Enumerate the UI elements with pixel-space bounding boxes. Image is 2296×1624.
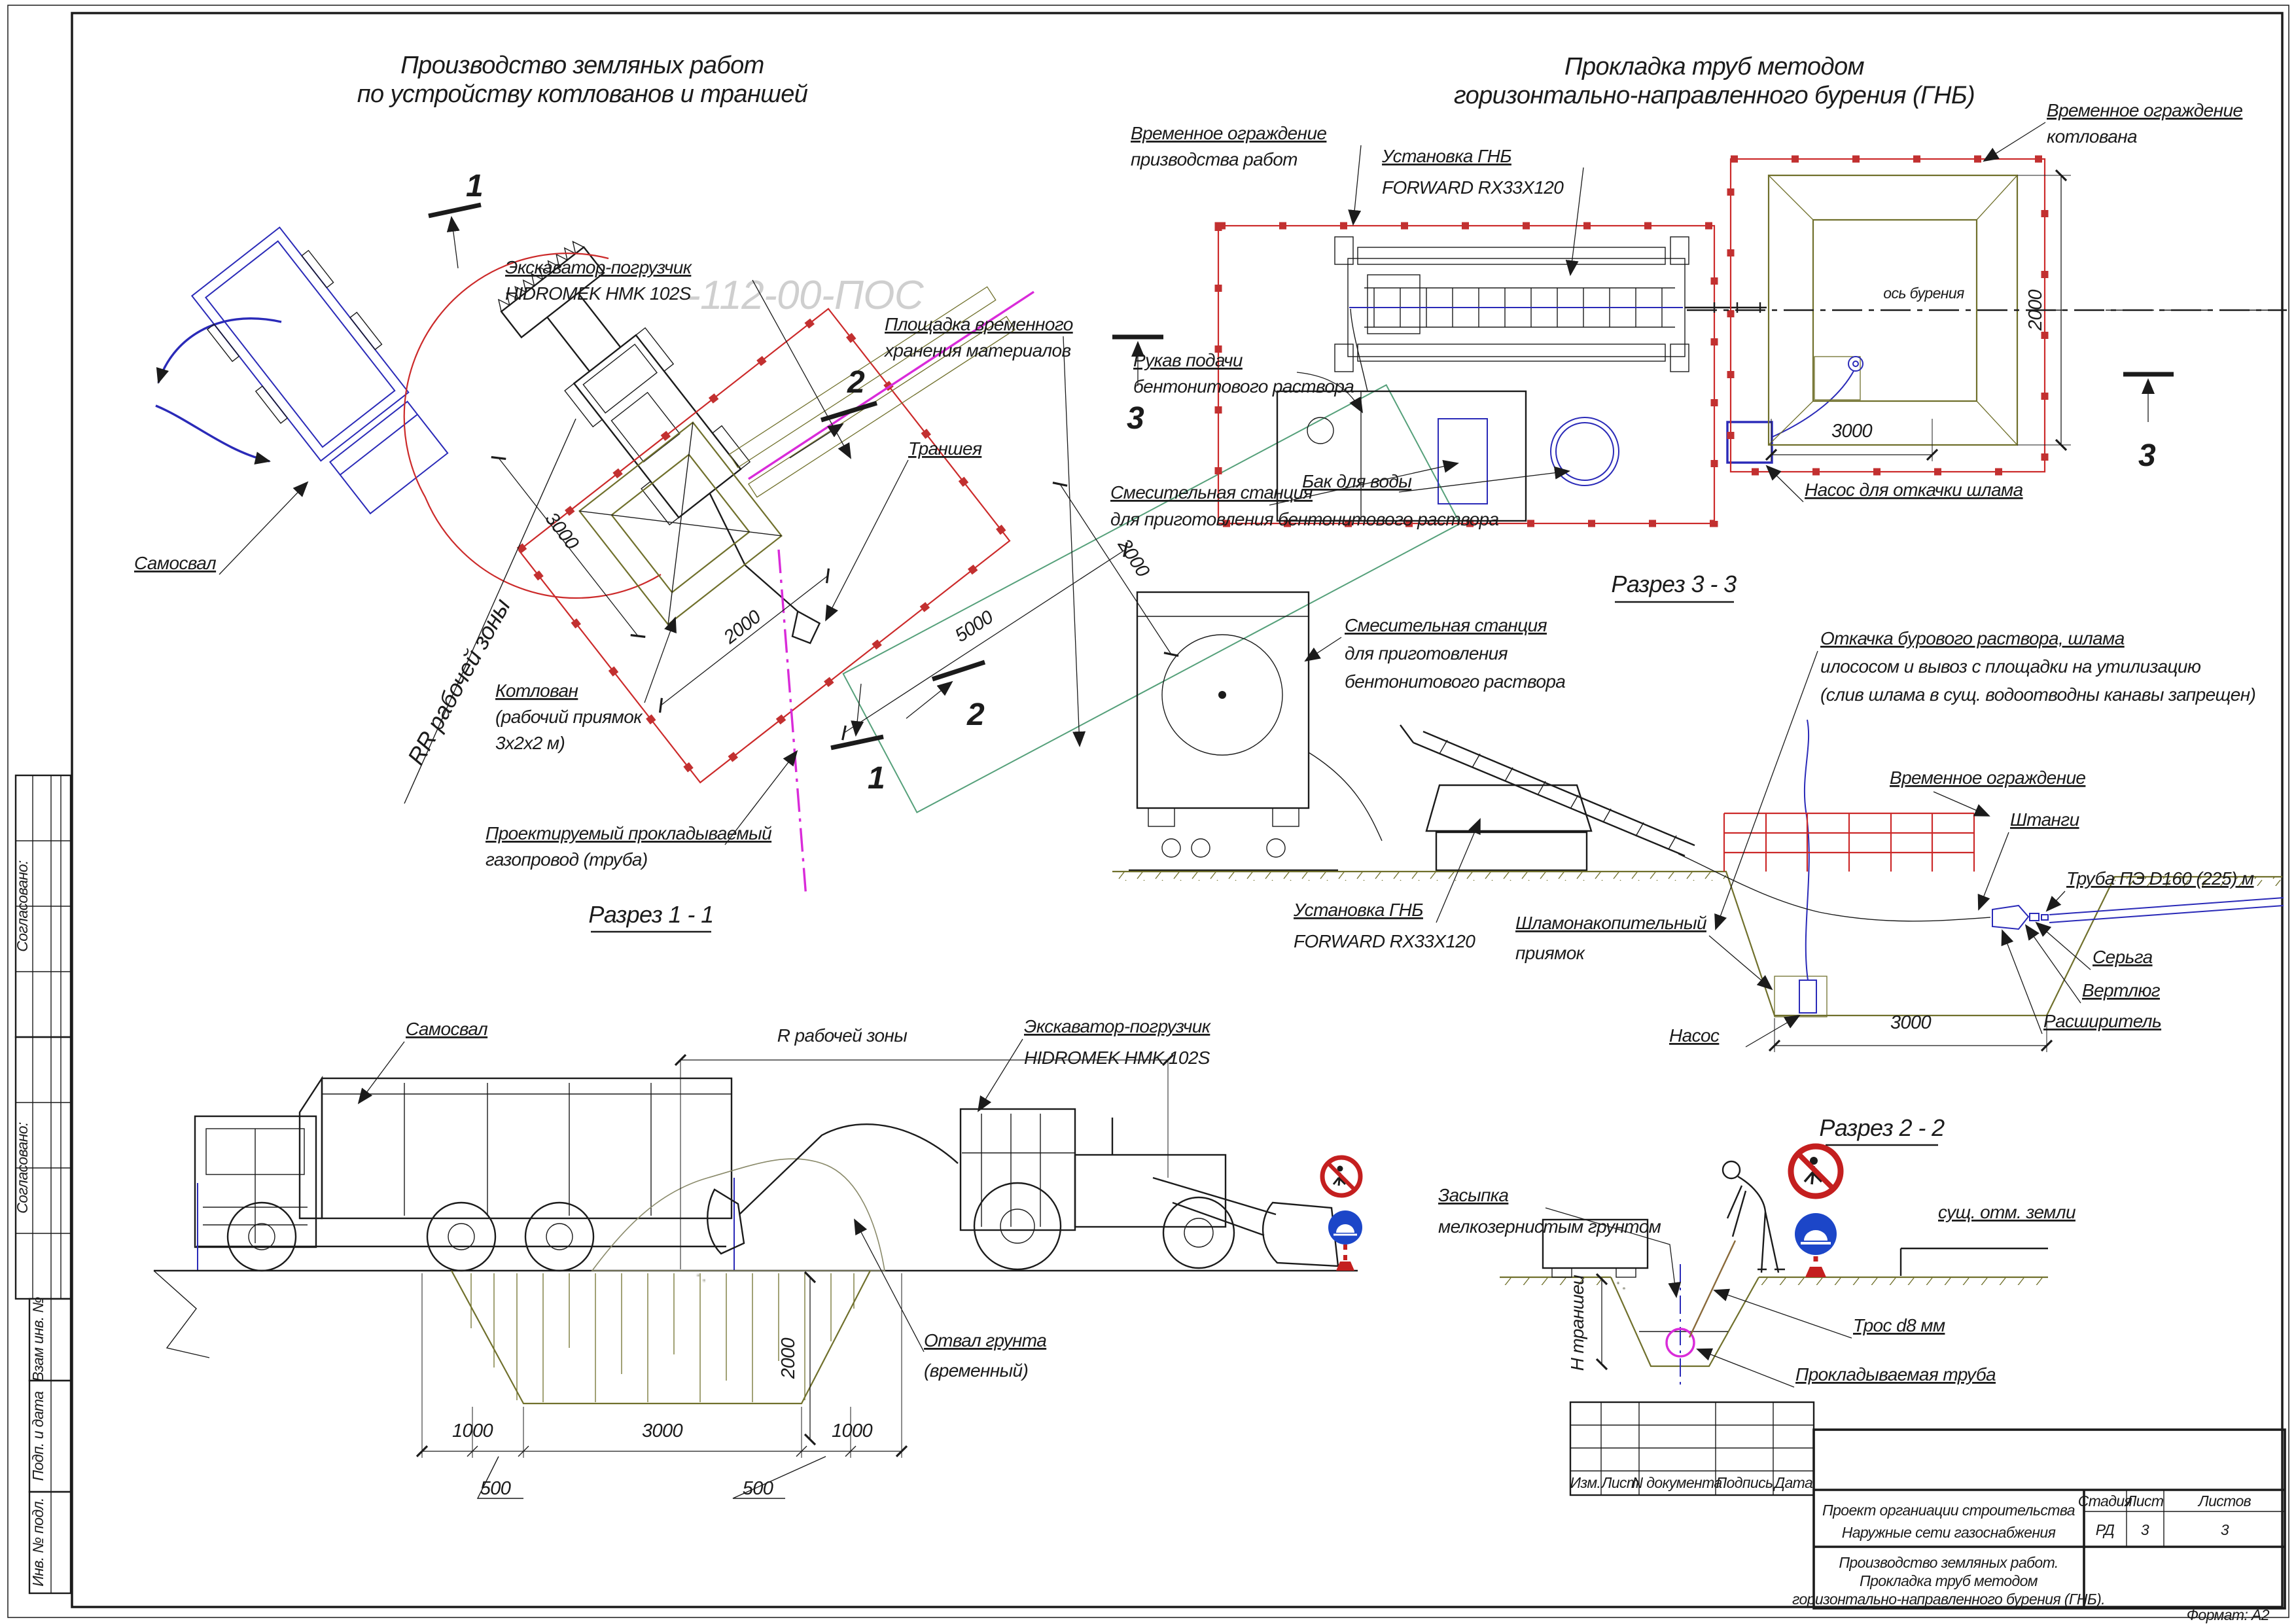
stage-value: РД — [2096, 1521, 2115, 1538]
svg-text:1: 1 — [466, 169, 483, 203]
sheets-value: 3 — [2221, 1521, 2229, 1538]
label-rig-plan-1: Установка ГНБ — [1381, 146, 1511, 166]
label-fence-pit-1: Временное ограждение — [2047, 100, 2242, 120]
label-excavator-2: HIDROMEK HMK 102S — [505, 283, 692, 304]
label-spoil-1: Отвал грунта — [924, 1330, 1046, 1350]
label-gas-pipe-2: газопровод (труба) — [486, 849, 648, 870]
stamp-cell-podp: Подп. и дата — [29, 1392, 46, 1481]
label-mixing-side-3: бентонитового раствора — [1345, 671, 1565, 692]
label-drill-axis: ось бурения — [1883, 285, 1964, 302]
rev-header-data: Дата — [1773, 1474, 1812, 1491]
label-truck-side: Самосвал — [406, 1019, 488, 1039]
label-rig-side-2: FORWARD RX33X120 — [1294, 931, 1475, 951]
label-pump: Насос — [1669, 1025, 1720, 1046]
dim-depth-2000: 2000 — [778, 1337, 799, 1379]
svg-text:2: 2 — [966, 697, 985, 732]
label-fence-pit-2: котлована — [2047, 126, 2137, 147]
doc-title-3: горизонтально-направленного бурения (ГНБ… — [1792, 1591, 2105, 1608]
approved-stamp-2: Согласовано: — [14, 1122, 31, 1214]
label-mixing-plan-1: Смесительная станция — [1110, 482, 1313, 503]
plan-right-title-2: горизонтально-направленного бурения (ГНБ… — [1454, 82, 1975, 109]
dim-offset-500-left: 500 — [480, 1478, 511, 1499]
label-cable: Трос d8 мм — [1853, 1315, 1945, 1335]
watermark-code: -112-00-ПОС — [687, 273, 925, 318]
label-shackle: Серьга — [2093, 947, 2153, 967]
label-excavator-side-1: Экскаватор-погрузчик — [1024, 1016, 1212, 1036]
label-sump-1: Шламонакопительный — [1515, 913, 1707, 933]
dim-hddpit-2000: 2000 — [2025, 289, 2046, 331]
drawing-canvas: Формат: А2 Согласовано: Согласовано: Вза… — [0, 0, 2296, 1624]
label-truck: Самосвал — [134, 553, 217, 573]
svg-text:1: 1 — [868, 761, 885, 796]
label-rods: Штанги — [2010, 809, 2080, 830]
label-removal-1: Откачка бурового раствора, шлама — [1820, 628, 2125, 648]
dim-offset-500-right: 500 — [743, 1478, 773, 1499]
label-mixing-side-1: Смесительная станция — [1345, 615, 1547, 635]
rev-header-ndoc: N документа — [1632, 1474, 1722, 1491]
no-pedestrian-sign-icon — [1791, 1146, 1841, 1196]
label-hose-1: Рукав подачи — [1133, 350, 1243, 370]
rev-header-izm: Изм. — [1570, 1474, 1601, 1491]
label-pit-3: 3х2х2 м) — [495, 733, 565, 753]
label-radius: R рабочей зоны — [777, 1025, 908, 1046]
section2-heading: Разрез 2 - 2 — [1819, 1114, 1945, 1141]
label-rig-side-1: Установка ГНБ — [1293, 900, 1423, 920]
label-storage-1: Площадка временного — [885, 314, 1073, 334]
dim-left-1000: 1000 — [452, 1421, 493, 1441]
dim-center-3000: 3000 — [642, 1421, 683, 1441]
label-pit-1: Котлован — [495, 680, 578, 701]
stage-label: Стадия — [2078, 1492, 2132, 1509]
plan-left-title-2: по устройству котлованов и траншей — [357, 80, 808, 108]
dim-hddpit-3000: 3000 — [1831, 421, 1873, 442]
label-sludge-pump: Насос для откачки шлама — [1805, 480, 2023, 500]
sheet-label: Лист — [2125, 1492, 2164, 1509]
rev-header-podpis: Подпись — [1716, 1474, 1773, 1491]
label-fence-side: Временное ограждение — [1890, 768, 2085, 788]
helmet-sign-icon — [1795, 1213, 1837, 1255]
approved-stamp-1: Согласовано: — [14, 860, 31, 952]
label-backfill-2: мелкозернистым грунтом — [1438, 1216, 1661, 1237]
dim-section3-3000: 3000 — [1890, 1012, 1932, 1033]
sheet-value: 3 — [2141, 1521, 2149, 1538]
label-swivel: Вертлюг — [2082, 980, 2161, 1000]
drawing-sheet: Формат: А2 Согласовано: Согласовано: Вза… — [0, 0, 2296, 1624]
svg-text:3: 3 — [2138, 438, 2156, 473]
label-mixing-side-2: для приготовления — [1345, 643, 1508, 663]
stamp-cell-inv: Инв. № подл. — [29, 1498, 46, 1587]
label-excavator-1: Экскаватор-погрузчик — [505, 257, 693, 277]
label-rig-plan-2: FORWARD RX33X120 — [1382, 177, 1564, 198]
helmet-sign-icon — [1328, 1210, 1362, 1244]
section3-heading: Разрез 3 - 3 — [1611, 571, 1737, 597]
label-laid-pipe: Прокладываемая труба — [1795, 1364, 1996, 1385]
label-excavator-side-2: HIDROMEK HMK 102S — [1024, 1048, 1210, 1068]
sheets-label: Листов — [2197, 1492, 2252, 1509]
label-mixing-plan-2: для приготовления бентонитового раствора — [1110, 509, 1498, 529]
label-reamer: Расширитель — [2043, 1011, 2161, 1031]
doc-title-1: Производство земляных работ. — [1839, 1554, 2058, 1571]
label-pit-2: (рабочий приямок — [495, 707, 643, 727]
no-pedestrian-sign-icon — [1322, 1157, 1360, 1195]
label-hose-2: бентонитового раствора — [1133, 376, 1354, 397]
svg-text:3: 3 — [1127, 401, 1144, 436]
label-removal-2: илососом и вывоз с площадки на утилизаци… — [1820, 656, 2201, 677]
project-name-2: Наружные сети газоснабжения — [1842, 1524, 2056, 1541]
plan-left-title-1: Производство земляных работ — [400, 52, 764, 79]
section1-heading: Разрез 1 - 1 — [588, 901, 713, 928]
label-ground-level: сущ. отм. земли — [1938, 1202, 2076, 1222]
dim-right-1000: 1000 — [832, 1421, 873, 1441]
label-sump-2: приямок — [1515, 943, 1586, 963]
label-backfill-1: Засыпка — [1438, 1185, 1508, 1205]
doc-title-2: Прокладка труб методом — [1860, 1572, 2038, 1589]
label-gas-pipe-1: Проектируемый прокладываемый — [486, 823, 772, 843]
label-trench-depth: Н траншеи — [1567, 1275, 1587, 1371]
label-fence-works-2: призводства работ — [1131, 149, 1298, 169]
stamp-cell-vzam: Взам инв. № — [29, 1297, 46, 1382]
label-water-tank: Бак для воды — [1302, 471, 1412, 491]
label-trench: Траншея — [908, 438, 982, 459]
label-removal-3: (слив шлама в сущ. водоотводны канавы за… — [1820, 684, 2255, 705]
plan-right-title-1: Прокладка труб методом — [1564, 53, 1864, 80]
label-fence-works-1: Временное ограждение — [1131, 123, 1326, 143]
label-storage-2: хранения материалов — [883, 340, 1071, 361]
label-spoil-2: (временный) — [924, 1360, 1028, 1381]
label-pe-pipe: Труба ПЭ D160 (225) м — [2066, 868, 2254, 889]
svg-text:2: 2 — [847, 365, 865, 400]
project-name-1: Проект органиации строительства — [1822, 1502, 2075, 1519]
